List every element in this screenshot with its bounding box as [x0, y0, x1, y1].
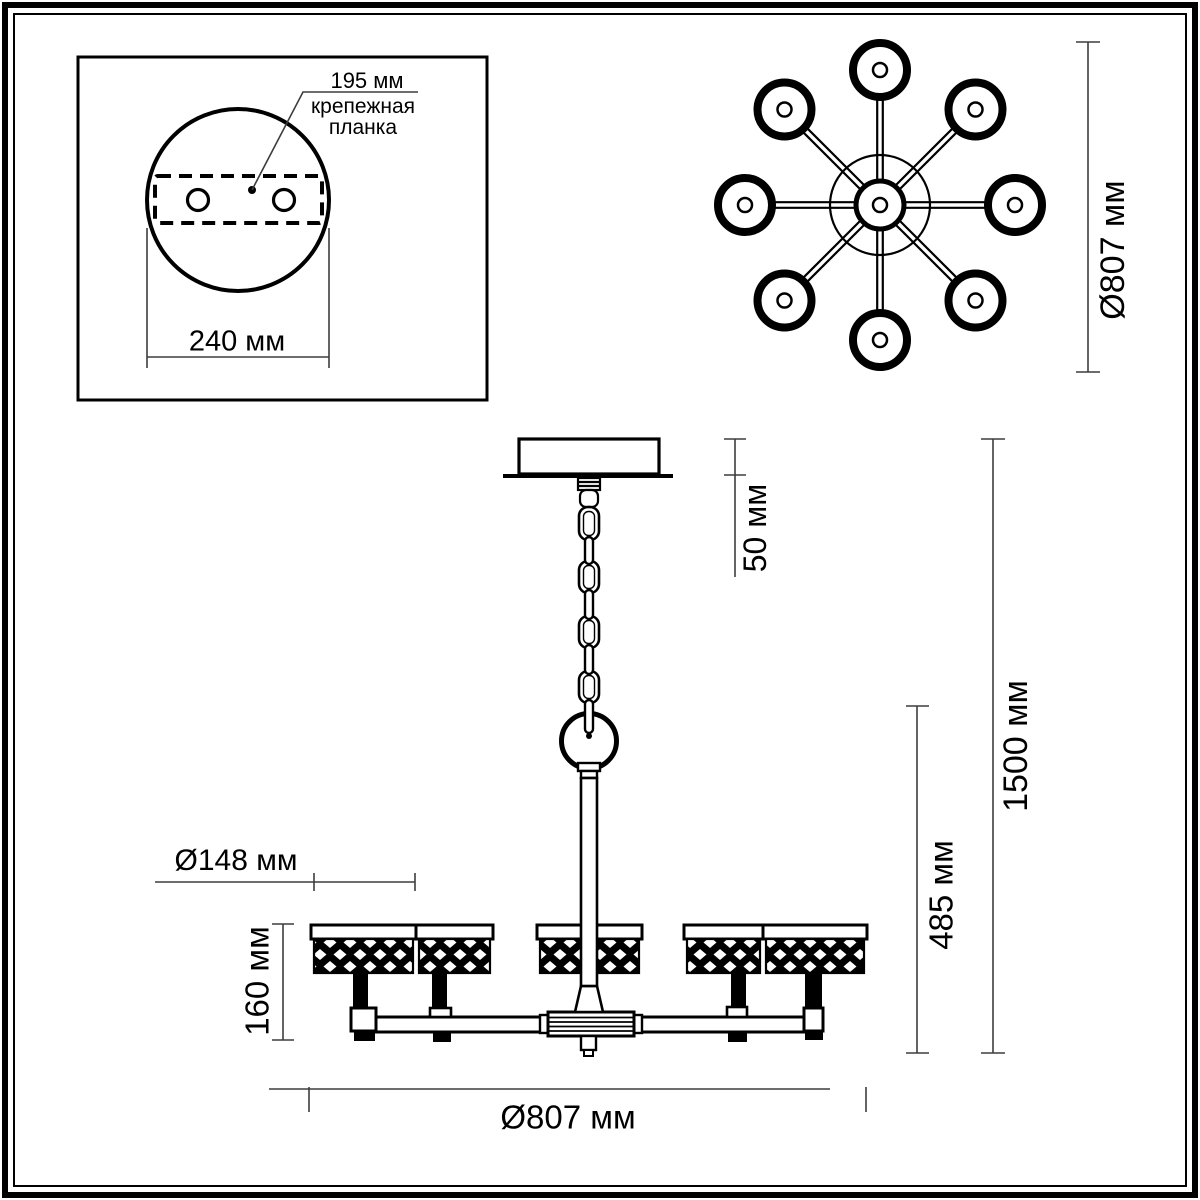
chain-connector	[578, 478, 600, 507]
hub-ring	[856, 181, 904, 229]
chandelier-dimension-drawing	[0, 0, 1200, 1200]
shade-b	[416, 925, 493, 973]
bracket-note: крепежная планка	[311, 96, 415, 138]
hanging-chain	[579, 507, 599, 703]
top-view-diameter-label: Ø807 мм	[1096, 180, 1130, 319]
chandelier-top-view-drawing	[718, 42, 1100, 372]
collar-upper	[578, 763, 600, 771]
mounting-bracket-dashed	[155, 176, 322, 223]
bottom-finial	[581, 1036, 596, 1056]
chandelier-side-view-drawing	[155, 439, 1005, 1112]
rod-taper	[575, 986, 603, 1012]
total-height-label: 1500 мм	[999, 680, 1033, 812]
ceiling-canopy	[519, 439, 659, 474]
side-view-diameter-label: Ø807 мм	[500, 1101, 635, 1134]
hole-spacing-label: 195 мм	[330, 70, 403, 92]
shade-d	[684, 925, 763, 973]
bracket-note-line2: планка	[311, 117, 415, 138]
bracket-hole-right	[274, 190, 295, 211]
bracket-note-line1: крепежная	[311, 96, 415, 117]
shade-diameter-label: Ø148 мм	[175, 846, 298, 876]
technical-drawing-page: 195 мм крепежная планка 240 мм Ø807 мм 5…	[0, 0, 1200, 1200]
shade-a	[311, 925, 416, 973]
canopy-height-label: 50 мм	[739, 484, 771, 572]
body-height-label: 485 мм	[925, 840, 958, 950]
ring-pin-link	[585, 700, 593, 733]
bar-center-hub	[540, 1012, 642, 1036]
shade-height-label: 160 мм	[241, 926, 274, 1036]
shade-e	[763, 925, 867, 973]
ring-pin-dot	[586, 733, 592, 739]
bracket-hole-left	[188, 190, 209, 211]
central-rod	[581, 778, 597, 986]
ceiling-cup-circle	[147, 109, 329, 291]
plate-width-label: 240 мм	[189, 328, 285, 357]
